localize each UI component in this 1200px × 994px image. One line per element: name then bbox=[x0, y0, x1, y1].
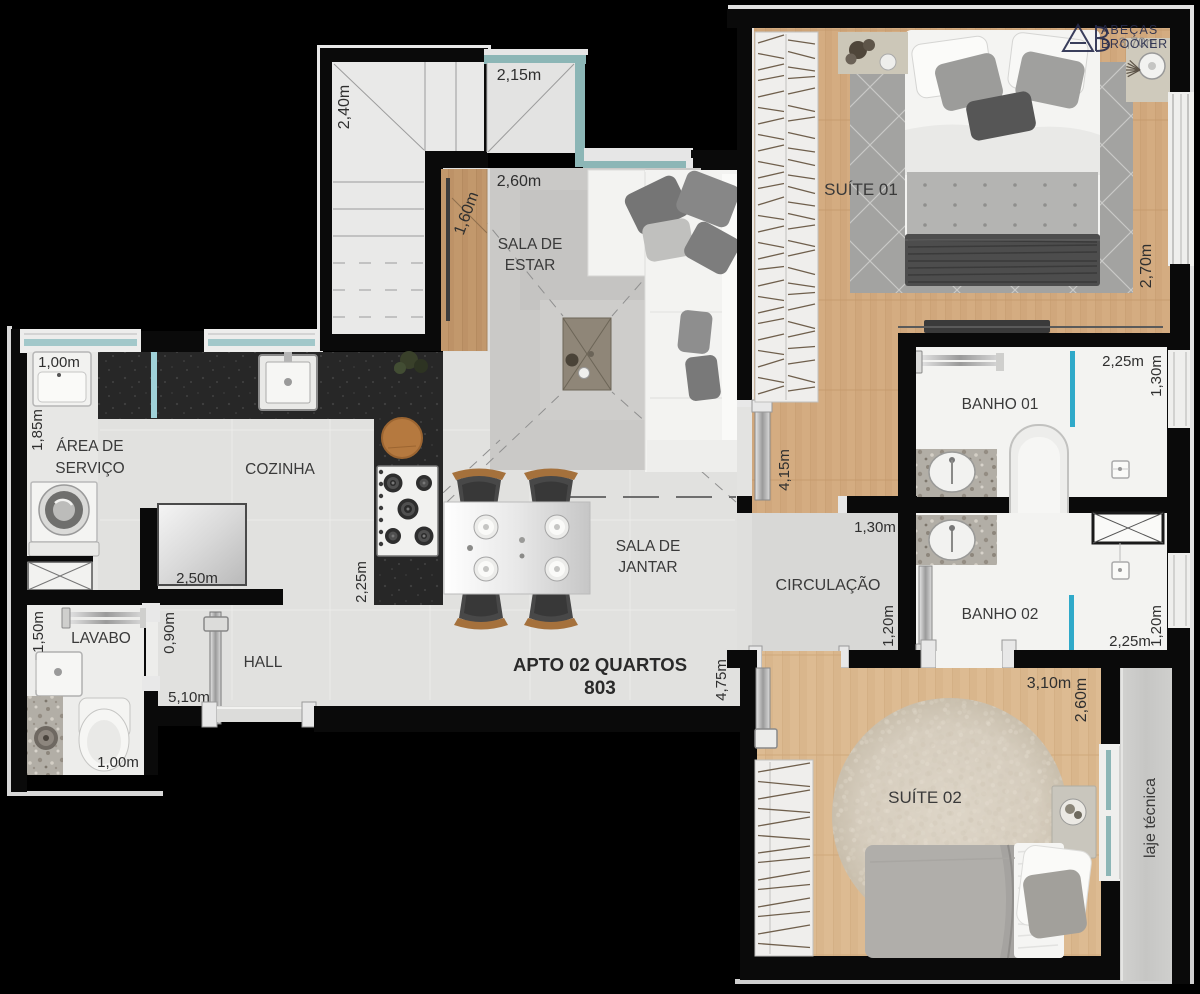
svg-text:2,60m: 2,60m bbox=[497, 173, 541, 190]
svg-text:APTO 02 QUARTOS: APTO 02 QUARTOS bbox=[513, 654, 687, 675]
svg-text:SALA DE: SALA DE bbox=[498, 236, 563, 253]
svg-text:803: 803 bbox=[584, 678, 616, 699]
svg-text:SERVIÇO: SERVIÇO bbox=[55, 460, 125, 477]
svg-text:1,30m: 1,30m bbox=[1148, 355, 1165, 397]
svg-text:HALL: HALL bbox=[244, 654, 283, 671]
svg-text:0,90m: 0,90m bbox=[161, 612, 178, 654]
svg-text:2,15m: 2,15m bbox=[497, 67, 541, 84]
svg-text:ABEÇAS: ABEÇAS bbox=[1101, 23, 1158, 37]
svg-text:CIRCULAÇÃO: CIRCULAÇÃO bbox=[776, 574, 881, 594]
svg-text:SALA DE: SALA DE bbox=[616, 538, 681, 555]
svg-text:ESTAR: ESTAR bbox=[505, 257, 556, 274]
svg-text:1,00m: 1,00m bbox=[97, 754, 139, 771]
svg-text:1,20m: 1,20m bbox=[1148, 605, 1165, 647]
svg-text:BROOKER: BROOKER bbox=[1101, 37, 1168, 51]
svg-text:1,20m: 1,20m bbox=[880, 605, 897, 647]
svg-text:1,85m: 1,85m bbox=[29, 409, 46, 451]
svg-text:2,50m: 2,50m bbox=[176, 570, 218, 587]
svg-text:2,70m: 2,70m bbox=[1138, 244, 1155, 288]
svg-text:2,60m: 2,60m bbox=[1073, 678, 1090, 722]
svg-text:COZINHA: COZINHA bbox=[245, 461, 315, 478]
svg-text:2,25m: 2,25m bbox=[1102, 353, 1144, 370]
svg-text:JANTAR: JANTAR bbox=[618, 559, 677, 576]
svg-text:LAVABO: LAVABO bbox=[71, 630, 131, 647]
svg-text:2,25m: 2,25m bbox=[1109, 633, 1151, 650]
svg-text:3,10m: 3,10m bbox=[1027, 675, 1071, 692]
svg-text:SUÍTE 01: SUÍTE 01 bbox=[824, 180, 898, 199]
svg-text:SUÍTE 02: SUÍTE 02 bbox=[888, 788, 962, 807]
svg-text:ÁREA DE: ÁREA DE bbox=[56, 438, 123, 455]
svg-text:BANHO 02: BANHO 02 bbox=[962, 606, 1039, 623]
svg-text:2,25m: 2,25m bbox=[353, 561, 370, 603]
svg-text:4,15m: 4,15m bbox=[776, 449, 793, 491]
svg-text:laje técnica: laje técnica bbox=[1142, 778, 1159, 858]
svg-text:1,00m: 1,00m bbox=[38, 354, 80, 371]
svg-text:1,50m: 1,50m bbox=[30, 611, 47, 653]
svg-text:2,40m: 2,40m bbox=[336, 85, 353, 129]
svg-text:BANHO 01: BANHO 01 bbox=[962, 396, 1039, 413]
svg-text:1,30m: 1,30m bbox=[854, 519, 896, 536]
